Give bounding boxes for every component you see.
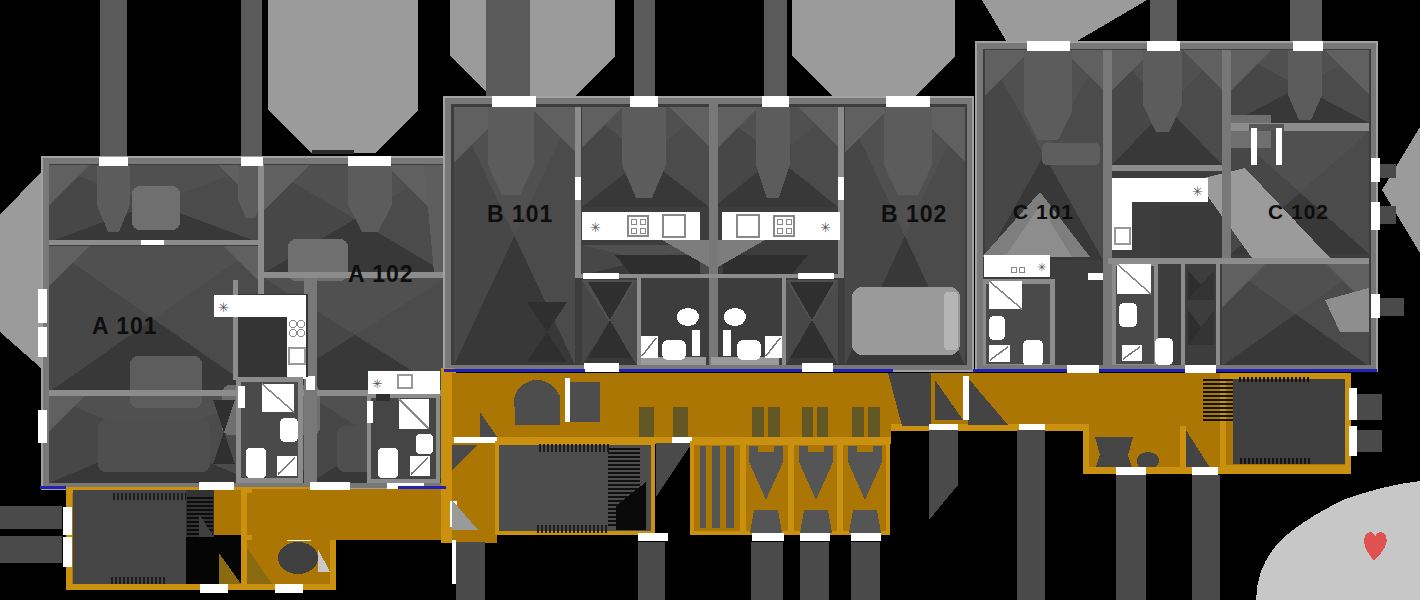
svg-text:✳: ✳: [218, 300, 229, 315]
svg-text:B 102: B 102: [881, 201, 947, 227]
svg-text:✳: ✳: [820, 220, 831, 235]
svg-text:A 102: A 102: [348, 261, 414, 287]
svg-text:C 102: C 102: [1268, 200, 1329, 223]
svg-text:✳: ✳: [1037, 261, 1046, 273]
svg-text:A 101: A 101: [92, 313, 158, 339]
svg-text:✳: ✳: [372, 377, 382, 391]
svg-text:B 101: B 101: [487, 201, 553, 227]
svg-text:C 101: C 101: [1013, 200, 1074, 223]
svg-text:✳: ✳: [1192, 184, 1203, 199]
svg-text:✳: ✳: [590, 220, 601, 235]
